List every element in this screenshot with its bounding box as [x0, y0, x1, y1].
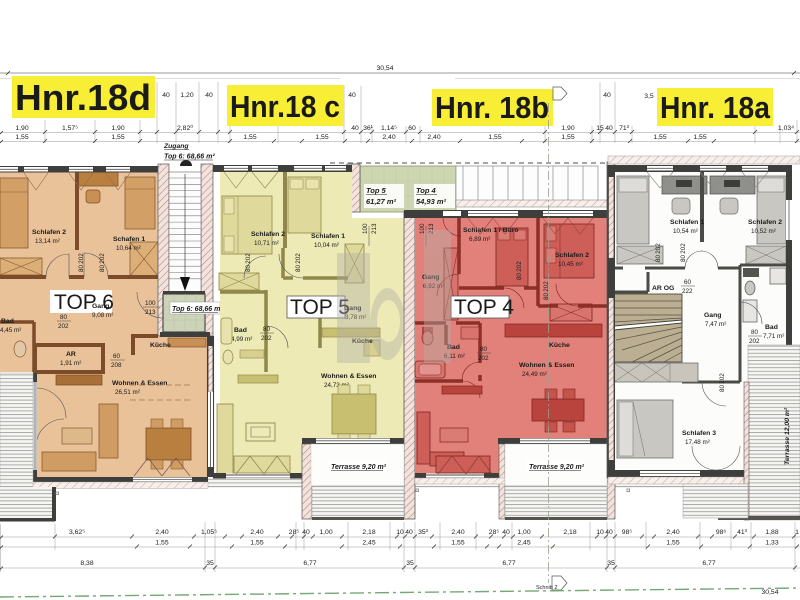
svg-text:Terrasse 12,00 m²: Terrasse 12,00 m² — [784, 407, 791, 465]
svg-text:213: 213 — [371, 223, 378, 234]
svg-text:Top 6: 68,66 m²: Top 6: 68,66 m² — [164, 154, 215, 161]
svg-text:10,71 m²: 10,71 m² — [254, 240, 279, 247]
svg-text:Terrasse 9,20 m²: Terrasse 9,20 m² — [331, 464, 387, 471]
svg-text:40: 40 — [605, 529, 613, 536]
svg-text:98⁵: 98⁵ — [622, 529, 633, 536]
svg-text:2,40: 2,40 — [666, 529, 679, 536]
svg-text:6,89 m²: 6,89 m² — [469, 236, 490, 243]
svg-text:35: 35 — [406, 560, 414, 567]
svg-text:4,45 m²: 4,45 m² — [0, 327, 21, 334]
svg-text:Top 6: 68,66 m²: Top 6: 68,66 m² — [172, 306, 223, 313]
svg-text:40: 40 — [605, 125, 613, 132]
svg-text:10,52 m²: 10,52 m² — [751, 228, 776, 235]
svg-text:7,71 m²: 7,71 m² — [763, 333, 784, 340]
svg-text:Hnr. 18b: Hnr. 18b — [435, 90, 549, 125]
svg-text:40: 40 — [205, 92, 213, 99]
svg-text:6,77: 6,77 — [303, 560, 316, 567]
svg-text:Schlafen 1: Schlafen 1 — [670, 219, 704, 226]
svg-text:40: 40 — [348, 92, 356, 99]
svg-text:10: 10 — [596, 529, 604, 536]
svg-text:8,38: 8,38 — [80, 560, 93, 567]
svg-text:1,55: 1,55 — [653, 134, 666, 141]
svg-text:222: 222 — [682, 288, 693, 295]
svg-text:98⁶: 98⁶ — [716, 529, 727, 536]
svg-text:10,04 m²: 10,04 m² — [314, 242, 339, 249]
svg-text:Bad: Bad — [234, 327, 247, 334]
svg-text:9,08 m²: 9,08 m² — [92, 312, 113, 319]
svg-text:30,54: 30,54 — [376, 65, 393, 72]
svg-text:1,90: 1,90 — [15, 125, 28, 132]
svg-text:41³: 41³ — [737, 529, 748, 536]
svg-text:1,55: 1,55 — [488, 134, 501, 141]
svg-text:Schlafen 2: Schlafen 2 — [32, 229, 66, 236]
svg-text:24,49 m²: 24,49 m² — [522, 371, 547, 378]
svg-text:202: 202 — [58, 323, 69, 330]
svg-text:202: 202 — [261, 335, 272, 342]
svg-text:1,55: 1,55 — [666, 540, 679, 547]
svg-text:2,45: 2,45 — [517, 540, 530, 547]
svg-text:Schlafen 1: Schlafen 1 — [311, 233, 345, 240]
svg-text:35³: 35³ — [418, 529, 429, 536]
svg-text:1,55: 1,55 — [243, 134, 256, 141]
svg-text:1,14⁵: 1,14⁵ — [381, 125, 397, 132]
svg-text:2,40: 2,40 — [155, 529, 168, 536]
svg-text:40: 40 — [603, 92, 611, 99]
svg-text:Gang: Gang — [92, 303, 109, 310]
svg-text:13,14 m²: 13,14 m² — [35, 238, 60, 245]
svg-text:Schlafen 2: Schlafen 2 — [251, 231, 285, 238]
svg-text:Hnr. 18a: Hnr. 18a — [660, 90, 771, 125]
svg-text:1,90: 1,90 — [561, 125, 574, 132]
svg-text:40: 40 — [162, 92, 170, 99]
svg-text:80: 80 — [751, 329, 759, 336]
svg-text:61,27 m²: 61,27 m² — [366, 197, 397, 206]
svg-text:Schlafen 2: Schlafen 2 — [555, 252, 589, 259]
svg-text:1,33: 1,33 — [765, 540, 778, 547]
svg-text:Küche: Küche — [150, 342, 171, 349]
svg-text:Hnr.18 c: Hnr.18 c — [230, 89, 340, 124]
svg-text:30,54: 30,54 — [761, 589, 778, 596]
svg-text:Schafen 1: Schafen 1 — [113, 236, 145, 243]
svg-text:3,62⁵: 3,62⁵ — [69, 529, 85, 536]
svg-text:1,55: 1,55 — [15, 134, 28, 141]
svg-text:60: 60 — [113, 353, 121, 360]
svg-text:80 202: 80 202 — [99, 253, 106, 272]
svg-text:17,48 m²: 17,48 m² — [685, 439, 710, 446]
svg-text:1,90: 1,90 — [111, 125, 124, 132]
svg-text:202: 202 — [478, 355, 489, 362]
svg-text:Top 4: Top 4 — [416, 186, 437, 195]
svg-text:36¹: 36¹ — [363, 125, 374, 132]
svg-text:Schlafen 3: Schlafen 3 — [682, 430, 716, 437]
svg-text:1,57⁵: 1,57⁵ — [62, 125, 78, 132]
svg-text:2,40: 2,40 — [451, 529, 464, 536]
svg-text:2,40: 2,40 — [427, 134, 440, 141]
svg-text:1,55: 1,55 — [561, 134, 574, 141]
svg-text:Top 5: Top 5 — [366, 186, 387, 195]
svg-text:1,88: 1,88 — [765, 529, 778, 536]
svg-text:1,05⁵: 1,05⁵ — [201, 529, 217, 536]
svg-text:Zugang: Zugang — [163, 143, 189, 150]
svg-text:1,03⁴: 1,03⁴ — [778, 125, 794, 132]
svg-text:4,99 m²: 4,99 m² — [231, 336, 252, 343]
svg-text:1,20: 1,20 — [180, 92, 193, 99]
svg-text:1,00: 1,00 — [517, 529, 530, 536]
svg-text:Hnr.18d: Hnr.18d — [15, 77, 151, 118]
svg-text:80: 80 — [60, 314, 68, 321]
svg-text:Wohnen & Essen: Wohnen & Essen — [519, 362, 574, 369]
svg-text:80 202: 80 202 — [295, 253, 302, 272]
svg-text:10,45 m²: 10,45 m² — [558, 261, 583, 268]
svg-text:202: 202 — [749, 338, 760, 345]
svg-text:60: 60 — [684, 279, 692, 286]
svg-text:71³: 71³ — [619, 125, 630, 132]
svg-text:Terrasse 9,20 m²: Terrasse 9,20 m² — [529, 464, 585, 471]
svg-text:2,40: 2,40 — [250, 529, 263, 536]
svg-text:60: 60 — [408, 125, 416, 132]
svg-text:7,47 m²: 7,47 m² — [705, 321, 726, 328]
svg-text:80 202: 80 202 — [543, 281, 550, 300]
svg-text:6,77: 6,77 — [502, 560, 515, 567]
svg-text:Wohnen & Essen: Wohnen & Essen — [112, 380, 167, 387]
svg-text:28⁵: 28⁵ — [489, 529, 500, 536]
svg-text:80 202: 80 202 — [516, 261, 523, 280]
svg-text:2,45: 2,45 — [362, 540, 375, 547]
svg-text:40: 40 — [351, 125, 359, 132]
svg-text:80 202: 80 202 — [655, 243, 662, 262]
svg-text:35: 35 — [206, 560, 214, 567]
svg-text:54,93 m²: 54,93 m² — [416, 197, 447, 206]
svg-text:80 202: 80 202 — [680, 243, 687, 262]
svg-text:TOP 4: TOP 4 — [454, 296, 514, 319]
svg-text:AR OG: AR OG — [652, 285, 674, 292]
svg-text:Bad: Bad — [765, 324, 778, 331]
svg-text:Gang: Gang — [704, 312, 721, 319]
svg-text:80 202: 80 202 — [245, 253, 252, 272]
svg-text:80 202: 80 202 — [78, 253, 85, 272]
svg-text:AR: AR — [66, 351, 76, 358]
svg-text:80 202: 80 202 — [719, 373, 726, 392]
svg-text:3,5: 3,5 — [644, 93, 654, 100]
svg-text:1,91 m²: 1,91 m² — [60, 360, 81, 367]
svg-text:6,77: 6,77 — [702, 560, 715, 567]
svg-text:80: 80 — [263, 326, 271, 333]
svg-text:2,18: 2,18 — [362, 529, 375, 536]
svg-text:213: 213 — [145, 309, 156, 316]
svg-text:2,18: 2,18 — [563, 529, 576, 536]
svg-text:26,51 m²: 26,51 m² — [115, 389, 140, 396]
svg-text:80: 80 — [480, 346, 488, 353]
svg-text:1,55: 1,55 — [693, 134, 706, 141]
svg-text:15: 15 — [596, 125, 604, 132]
svg-text:2,40: 2,40 — [382, 134, 395, 141]
svg-text:208: 208 — [111, 362, 122, 369]
svg-text:100: 100 — [362, 223, 369, 234]
svg-text:1,55: 1,55 — [155, 540, 168, 547]
svg-text:10,64 m²: 10,64 m² — [116, 245, 141, 252]
svg-text:Wohnen & Essen: Wohnen & Essen — [321, 373, 376, 380]
svg-text:1,55: 1,55 — [451, 540, 464, 547]
svg-text:1,55: 1,55 — [315, 134, 328, 141]
svg-text:1,55: 1,55 — [111, 134, 124, 141]
svg-text:2,82⁰: 2,82⁰ — [177, 124, 193, 132]
svg-text:10,54 m²: 10,54 m² — [673, 228, 698, 235]
svg-text:1,55: 1,55 — [250, 540, 263, 547]
svg-text:Küche: Küche — [549, 342, 570, 349]
svg-text:100: 100 — [145, 300, 156, 307]
svg-text:1,00: 1,00 — [319, 529, 332, 536]
svg-text:Schlafen 2: Schlafen 2 — [748, 219, 782, 226]
svg-text:10: 10 — [396, 529, 404, 536]
svg-text:Bad: Bad — [1, 318, 14, 325]
